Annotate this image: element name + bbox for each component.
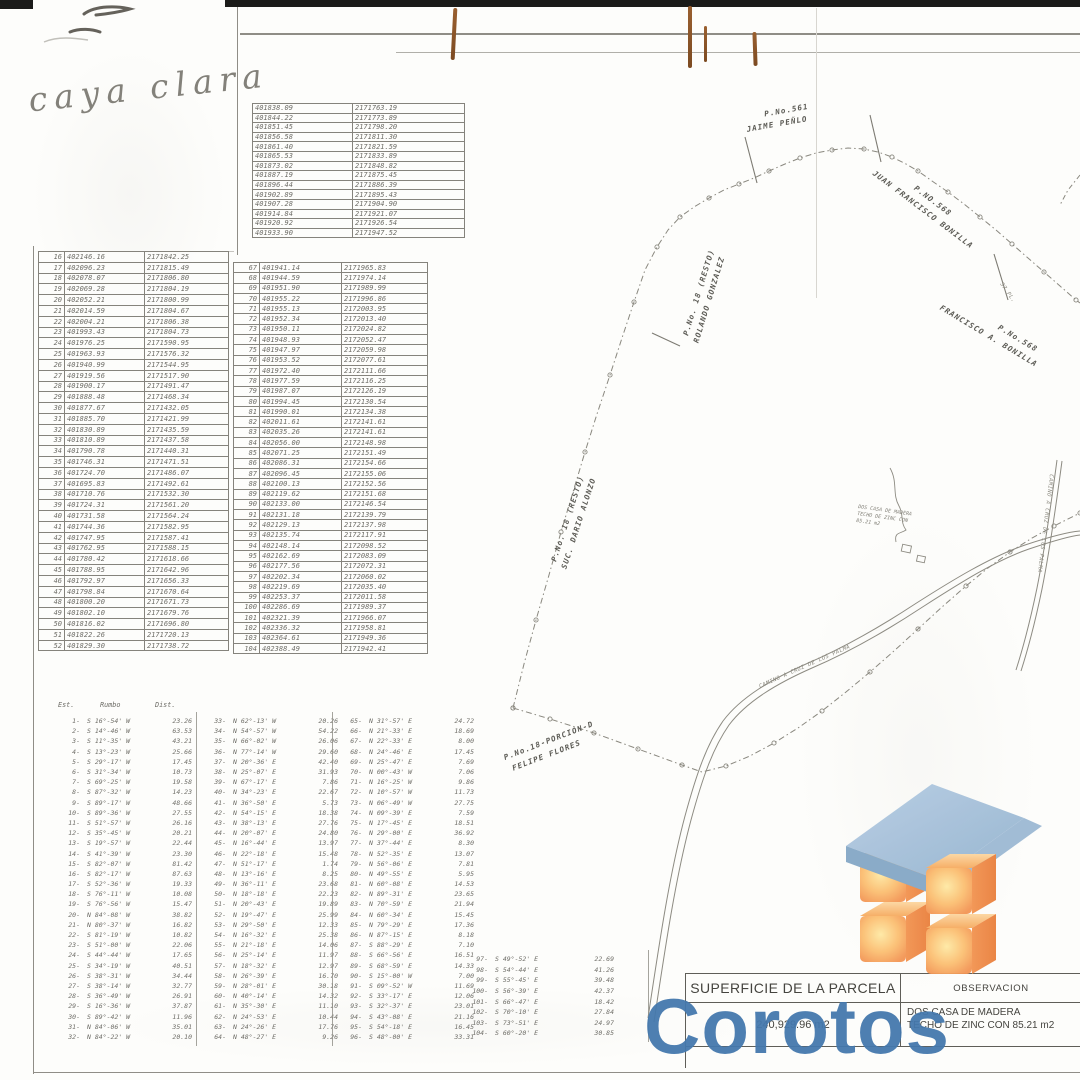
table-row: 72401952.342172013.40 [234, 314, 428, 324]
bearing-row: 64-N 48°-27' E9.26 [202, 1032, 338, 1042]
svg-text:JAIME PEÑLO: JAIME PEÑLO [745, 114, 808, 134]
table-row: 39401724.312171561.20 [39, 500, 229, 511]
table-row: 27401919.562171517.90 [39, 370, 229, 381]
bearing-row: 100-S 56°-39' E42.37 [464, 986, 614, 997]
bearings-group-4: 97-S 49°-52' E22.6998-S 54°-44' E41.2699… [464, 954, 614, 1039]
table-row: 42401747.952171587.41 [39, 532, 229, 543]
bearing-row: 8-S 87°-32' W14.23 [56, 787, 192, 797]
table-row: 31401885.702171421.99 [39, 413, 229, 424]
neighbor-boundary-fragment [1060, 175, 1080, 205]
scanned-survey-plan: caya clara P.No.561 JAIME PE [0, 0, 1080, 1080]
bearing-row: 56-N 25°-14' E11.97 [202, 950, 338, 960]
bearing-row: 53-N 29°-50' E12.33 [202, 920, 338, 930]
bearing-row: 12-S 35°-45' W20.21 [56, 828, 192, 838]
bearings-header-rumbo: Rumbo [100, 701, 120, 709]
bearing-row: 24-S 44°-44' W17.65 [56, 950, 192, 960]
table-row: 401933.902171947.52 [253, 228, 465, 238]
table-row: 79401987.072172126.19 [234, 386, 428, 396]
coordinate-table-top: 401838.092171763.19401844.222171773.8940… [252, 103, 465, 238]
table-row: 48401800.202171671.73 [39, 597, 229, 608]
bearing-row: 74-N 09°-39' E7.59 [338, 808, 474, 818]
bearing-row: 63-N 24°-26' E17.76 [202, 1022, 338, 1032]
table-row: 24401976.252171590.95 [39, 338, 229, 349]
table-row: 401873.022171848.82 [253, 161, 465, 171]
table-row: 97402202.342172060.02 [234, 571, 428, 581]
bearing-row: 85-N 79°-29' E17.36 [338, 920, 474, 930]
table-row: 41401744.362171582.95 [39, 521, 229, 532]
bearing-row: 76-N 29°-00' E36.92 [338, 828, 474, 838]
table-row: 50401816.022171696.80 [39, 619, 229, 630]
table-row: 23401993.432171804.73 [39, 327, 229, 338]
bearing-row: 18-S 76°-11' W10.08 [56, 889, 192, 899]
bearing-row: 75-N 17°-45' E18.51 [338, 818, 474, 828]
table-row: 401887.192171875.45 [253, 171, 465, 181]
bearing-row: 57-N 18°-32' E12.97 [202, 961, 338, 971]
bearing-row: 29-S 16°-36' W37.87 [56, 1001, 192, 1011]
bearing-row: 92-S 33°-17' E12.06 [338, 991, 474, 1001]
survey-point [820, 709, 824, 713]
bearings-separator-1 [196, 712, 197, 1046]
table-row: 98402219.692172035.40 [234, 582, 428, 592]
table-row: 401920.922171926.54 [253, 219, 465, 229]
survey-point [655, 245, 659, 249]
table-row: 47401798.842171670.64 [39, 586, 229, 597]
table-row: 18402078.072171806.80 [39, 273, 229, 284]
table-row: 17402096.232171815.49 [39, 262, 229, 273]
survey-point [1010, 242, 1014, 246]
table-row: 28401900.172171491.47 [39, 381, 229, 392]
bearing-row: 14-S 41°-39' W23.30 [56, 848, 192, 858]
table-row: 93402135.742172117.91 [234, 530, 428, 540]
table-row: 51401822.262171720.13 [39, 629, 229, 640]
bearing-row: 93-S 32°-37' E23.01 [338, 1001, 474, 1011]
coordinate-table-left: 16402146.162171842.2517402096.232171815.… [38, 251, 229, 651]
table-row: 102402336.322171958.81 [234, 623, 428, 633]
table-row: 22402004.212171806.38 [39, 316, 229, 327]
bearings-separator-2 [332, 712, 333, 1046]
label-road-a: CAMINO A CRUZ DE LOS PALMA [758, 644, 851, 690]
bearing-row: 96-S 48°-00' E33.31 [338, 1032, 474, 1042]
table-row: 25401963.932171576.32 [39, 349, 229, 360]
bearing-row: 61-N 35°-30' E11.10 [202, 1001, 338, 1011]
bearing-row: 71-N 16°-25' W9.86 [338, 777, 474, 787]
bearing-row: 82-N 89°-31' E23.65 [338, 889, 474, 899]
bearing-row: 87-S 88°-29' E7.10 [338, 940, 474, 950]
bearing-row: 95-S 54°-18' E16.45 [338, 1022, 474, 1032]
table-row: 73401950.112172024.82 [234, 324, 428, 334]
bearing-row: 37-N 20°-36' E42.40 [202, 757, 338, 767]
bearing-row: 50-N 18°-18' E22.23 [202, 889, 338, 899]
label-juan-francisco-bonilla: P.NO.568 JUAN FRANCISCO BONILLA [870, 158, 983, 251]
bearing-row: 31-N 84°-06' W35.01 [56, 1022, 192, 1032]
bearing-row: 2-S 14°-46' W63.53 [56, 726, 192, 736]
bearing-row: 17-S 52°-36' W19.33 [56, 879, 192, 889]
bearing-row: 58-N 26°-39' E16.70 [202, 971, 338, 981]
table-row: 90402133.002172146.54 [234, 499, 428, 509]
bearing-row: 65-N 31°-57' E24.72 [338, 716, 474, 726]
bearing-row: 38-N 25°-07' E31.93 [202, 767, 338, 777]
table-row: 77401972.402172111.66 [234, 365, 428, 375]
bearing-row: 52-N 19°-47' E25.99 [202, 910, 338, 920]
bearing-row: 26-S 38°-31' W34.44 [56, 971, 192, 981]
table-row: 75401947.972172059.98 [234, 345, 428, 355]
table-row: 21402014.592171804.67 [39, 305, 229, 316]
table-row: 44401780.422171618.66 [39, 554, 229, 565]
table-row: 78401977.592172116.25 [234, 376, 428, 386]
table-row: 99402253.372172011.58 [234, 592, 428, 602]
table-row: 104402388.492171942.41 [234, 643, 428, 653]
bearing-row: 10-S 89°-36' W27.55 [56, 808, 192, 818]
bearing-row: 59-N 28°-01' E30.18 [202, 981, 338, 991]
bearing-row: 80-N 49°-55' E5.95 [338, 869, 474, 879]
survey-point [772, 741, 776, 745]
bearing-row: 83-N 70°-59' E21.94 [338, 899, 474, 909]
survey-point [724, 764, 728, 768]
table-row: 87402096.452172155.06 [234, 468, 428, 478]
bearing-row: 68-N 24°-46' E17.45 [338, 747, 474, 757]
table-row: 86402086.312172154.66 [234, 458, 428, 468]
bearing-row: 3-S 11°-35' W43.21 [56, 736, 192, 746]
bearing-row: 22-S 81°-19' W10.82 [56, 930, 192, 940]
label-suc-dario-alonzo: P.No. 18 (RESTO) SUC. DARIO ALONZO [548, 473, 597, 570]
table-row: 20402052.212171800.99 [39, 295, 229, 306]
table-row: 45401788.952171642.96 [39, 565, 229, 576]
table-row: 69401951.902171989.99 [234, 283, 428, 293]
bearing-row: 78-N 52°-35' E13.07 [338, 848, 474, 858]
bearing-row: 77-N 37°-44' E8.30 [338, 838, 474, 848]
parcel-boundary-lines [513, 148, 1080, 772]
table-row: 46401792.972171656.33 [39, 575, 229, 586]
table-row: 91402131.182172139.79 [234, 510, 428, 520]
watermark-cube-front [926, 854, 996, 914]
table-row: 401856.582171811.30 [253, 132, 465, 142]
table-row: 29401888.482171468.34 [39, 392, 229, 403]
table-row: 16402146.162171842.25 [39, 252, 229, 263]
bearing-row: 34-N 54°-57' W54.22 [202, 726, 338, 736]
table-row: 36401724.702171486.07 [39, 467, 229, 478]
bearing-row: 15-S 82°-07' W81.42 [56, 859, 192, 869]
bearing-row: 35-N 66°-02' W26.06 [202, 736, 338, 746]
svg-text:CAMINO A CRUZ DE LOS PALMA: CAMINO A CRUZ DE LOS PALMA [1036, 474, 1054, 573]
survey-point [964, 584, 968, 588]
bearing-row: 40-N 34°-23' E22.67 [202, 787, 338, 797]
corotos-wordmark: Corotos [644, 981, 950, 1072]
table-row: 401865.532171833.89 [253, 151, 465, 161]
bearing-row: 88-S 66°-56' E16.51 [338, 950, 474, 960]
bearing-row: 43-N 38°-13' E27.76 [202, 818, 338, 828]
bearing-row: 102-S 70°-10' E27.84 [464, 1007, 614, 1018]
bearing-row: 44-N 20°-07' E24.80 [202, 828, 338, 838]
bearing-row: 1-S 16°-54' W23.26 [56, 716, 192, 726]
table-row: 32401830.892171435.59 [39, 424, 229, 435]
table-row: 401851.452171798.20 [253, 123, 465, 133]
table-row: 35401746.312171471.51 [39, 457, 229, 468]
bearing-row: 49-N 36°-11' E23.68 [202, 879, 338, 889]
coordinate-table-middle: 67401941.142171965.8368401944.592171974.… [233, 262, 428, 654]
survey-point [978, 215, 982, 219]
table-row: 40401731.582171564.24 [39, 511, 229, 522]
bearing-row: 6-S 31°-34' W10.73 [56, 767, 192, 777]
bearing-row: 36-N 77°-14' W29.60 [202, 747, 338, 757]
bearing-row: 79-N 56°-06' E7.81 [338, 859, 474, 869]
label-rolando-gonzalez: P.No. 18 (RESTO) ROLANDO GONZALEZ [680, 248, 728, 344]
table-row: 88402100.132172152.56 [234, 479, 428, 489]
table-row: 103402364.612171949.36 [234, 633, 428, 643]
svg-text:37 PL.: 37 PL. [998, 281, 1017, 304]
bearing-row: 94-S 43°-08' E21.16 [338, 1011, 474, 1021]
survey-point [946, 190, 950, 194]
bearing-row: 81-N 60°-08' E14.53 [338, 879, 474, 889]
bearing-row: 55-N 21°-18' E14.06 [202, 940, 338, 950]
table-row: 33401810.892171437.58 [39, 435, 229, 446]
table-row: 401861.402171821.59 [253, 142, 465, 152]
bearing-row: 32-N 84°-22' W20.10 [56, 1032, 192, 1042]
bearings-header-dist: Dist. [155, 701, 175, 709]
table-row: 94402148.142172098.52 [234, 541, 428, 551]
table-row: 401838.092171763.19 [253, 104, 465, 114]
bearing-row: 70-N 00°-43' W7.06 [338, 767, 474, 777]
table-row: 38401710.762171532.30 [39, 489, 229, 500]
bearing-row: 54-N 16°-32' E25.38 [202, 930, 338, 940]
bearing-row: 13-S 19°-57' W22.44 [56, 838, 192, 848]
label-francisco-a-bonilla: P.No.568 FRANCISCO A. BONILLA [938, 292, 1046, 369]
table-row: 82402011.612172141.61 [234, 417, 428, 427]
bearing-row: 19-S 76°-56' W15.47 [56, 899, 192, 909]
table-row: 95402162.692172083.09 [234, 551, 428, 561]
table-row: 19402069.282171804.19 [39, 284, 229, 295]
table-row: 67401941.142171965.83 [234, 263, 428, 273]
bearing-row: 21-N 80°-37' W16.82 [56, 920, 192, 930]
table-row: 68401944.592171974.14 [234, 273, 428, 283]
label-road-b: CAMINO A CRUZ DE LOS PALMA [1036, 474, 1054, 573]
table-row: 92402129.132172137.98 [234, 520, 428, 530]
table-row: 74401948.932172052.47 [234, 335, 428, 345]
survey-point-markers [511, 147, 1080, 768]
bearing-row: 9-S 89°-17' W48.66 [56, 798, 192, 808]
bearing-row: 5-S 29°-17' W17.45 [56, 757, 192, 767]
bearing-row: 39-N 67°-17' E7.86 [202, 777, 338, 787]
bearing-row: 103-S 73°-51' E24.97 [464, 1018, 614, 1029]
bearing-row: 89-S 68°-59' E14.33 [338, 961, 474, 971]
table-row: 84402056.002172148.98 [234, 438, 428, 448]
table-row: 26401940.992171544.95 [39, 359, 229, 370]
table-row: 30401877.672171432.05 [39, 403, 229, 414]
bearing-row: 28-S 36°-49' W26.91 [56, 991, 192, 1001]
bearing-row: 30-S 89°-42' W11.96 [56, 1011, 192, 1021]
label-jaime-penlo: P.No.561 JAIME PEÑLO [743, 102, 812, 134]
table-row: 401844.222171773.89 [253, 113, 465, 123]
table-row: 43401762.952171588.15 [39, 543, 229, 554]
bearing-row: 73-N 06°-49' W27.75 [338, 798, 474, 808]
bearing-row: 47-N 51°-17' E1.74 [202, 859, 338, 869]
table-row: 71401955.132172003.95 [234, 304, 428, 314]
bearing-row: 23-S 51°-00' W22.06 [56, 940, 192, 950]
table-row: 89402119.622172151.68 [234, 489, 428, 499]
bearings-header-est: Est. [58, 701, 74, 709]
bearing-row: 4-S 13°-23' W25.66 [56, 747, 192, 757]
bearing-row: 25-S 34°-19' W40.51 [56, 961, 192, 971]
bearings-group-3: 65-N 31°-57' E24.7266-N 21°-33' E18.6967… [338, 716, 474, 1042]
bearing-row: 11-S 51°-57' W26.16 [56, 818, 192, 828]
bearing-row: 48-N 13°-16' E8.25 [202, 869, 338, 879]
bearing-row: 51-N 20°-43' E19.89 [202, 899, 338, 909]
svg-text:CAMINO A CRUZ DE LOS PALMA: CAMINO A CRUZ DE LOS PALMA [758, 644, 851, 690]
observacion-header: OBSERVACION [953, 983, 1028, 994]
table-row: 34401790.782171440.31 [39, 446, 229, 457]
bearing-row: 42-N 54°-15' E18.38 [202, 808, 338, 818]
bearing-row: 98-S 54°-44' E41.26 [464, 965, 614, 976]
table-row: 101402321.392171966.07 [234, 613, 428, 623]
label-house-note: DOS CASA DE MADERA TECHO DE ZINC CON 85.… [855, 504, 912, 531]
survey-point [1074, 298, 1078, 302]
bearing-row: 101-S 66°-47' E18.42 [464, 996, 614, 1007]
survey-point [890, 155, 894, 159]
table-row: 81401990.012172134.38 [234, 407, 428, 417]
bearing-row: 84-N 60°-34' E15.45 [338, 910, 474, 920]
label-37pl: 37 PL. [998, 281, 1017, 304]
table-row: 85402071.252172151.49 [234, 448, 428, 458]
bearing-row: 20-N 84°-08' W38.82 [56, 910, 192, 920]
bearing-row: 90-S 15°-00' W7.00 [338, 971, 474, 981]
bearings-group-2: 33-N 62°-13' W20.2634-N 54°-57' W54.2235… [202, 716, 338, 1042]
bearing-row: 27-S 38°-14' W32.77 [56, 981, 192, 991]
table-row: 76401953.522172077.61 [234, 355, 428, 365]
svg-text:JUAN FRANCISCO BONILLA: JUAN FRANCISCO BONILLA [870, 168, 975, 250]
bearing-row: 66-N 21°-33' E18.69 [338, 726, 474, 736]
bearing-row: 67-N 22°-33' E8.00 [338, 736, 474, 746]
table-row: 52401829.302171738.72 [39, 640, 229, 651]
bearing-row: 7-S 69°-25' W19.58 [56, 777, 192, 787]
bearings-group-1: 1-S 16°-54' W23.262-S 14°-46' W63.533-S … [56, 716, 192, 1042]
bearing-row: 86-N 87°-15' E8.18 [338, 930, 474, 940]
bearing-row: 41-N 36°-50' E5.73 [202, 798, 338, 808]
table-row: 100402286.692171989.37 [234, 602, 428, 612]
bearing-row: 60-N 40°-14' E14.32 [202, 991, 338, 1001]
table-row: 70401955.222171996.86 [234, 293, 428, 303]
table-row: 401907.282171904.90 [253, 199, 465, 209]
table-row: 37401695.832171492.61 [39, 478, 229, 489]
survey-point [678, 215, 682, 219]
bearing-row: 45-N 16°-44' E13.97 [202, 838, 338, 848]
bearing-row: 69-N 25°-47' E7.69 [338, 757, 474, 767]
bearing-row: 99-S 55°-45' E39.48 [464, 975, 614, 986]
corotos-cube-logo [838, 760, 1068, 980]
bearing-row: 33-N 62°-13' W20.26 [202, 716, 338, 726]
survey-point [737, 182, 741, 186]
bearing-row: 104-S 60°-20' E30.85 [464, 1028, 614, 1039]
bearing-row: 46-N 22°-18' E15.48 [202, 848, 338, 858]
bearing-row: 72-N 10°-57' W11.73 [338, 787, 474, 797]
table-row: 96402177.562172072.31 [234, 561, 428, 571]
table-row: 49401802.102171679.76 [39, 608, 229, 619]
table-row: 401896.442171886.39 [253, 180, 465, 190]
bearing-row: 62-N 24°-53' E10.44 [202, 1011, 338, 1021]
bearing-row: 16-S 82°-17' W87.63 [56, 869, 192, 879]
table-row: 83402035.262172141.61 [234, 427, 428, 437]
bearing-row: 97-S 49°-52' E22.69 [464, 954, 614, 965]
table-row: 80401994.452172130.54 [234, 396, 428, 406]
table-row: 401914.842171921.07 [253, 209, 465, 219]
table-row: 401902.892171895.43 [253, 190, 465, 200]
bearing-row: 91-S 09°-52' W11.69 [338, 981, 474, 991]
label-felipe-flores: P.No.18-PORCION-D FELIPE FLORES [502, 719, 599, 774]
